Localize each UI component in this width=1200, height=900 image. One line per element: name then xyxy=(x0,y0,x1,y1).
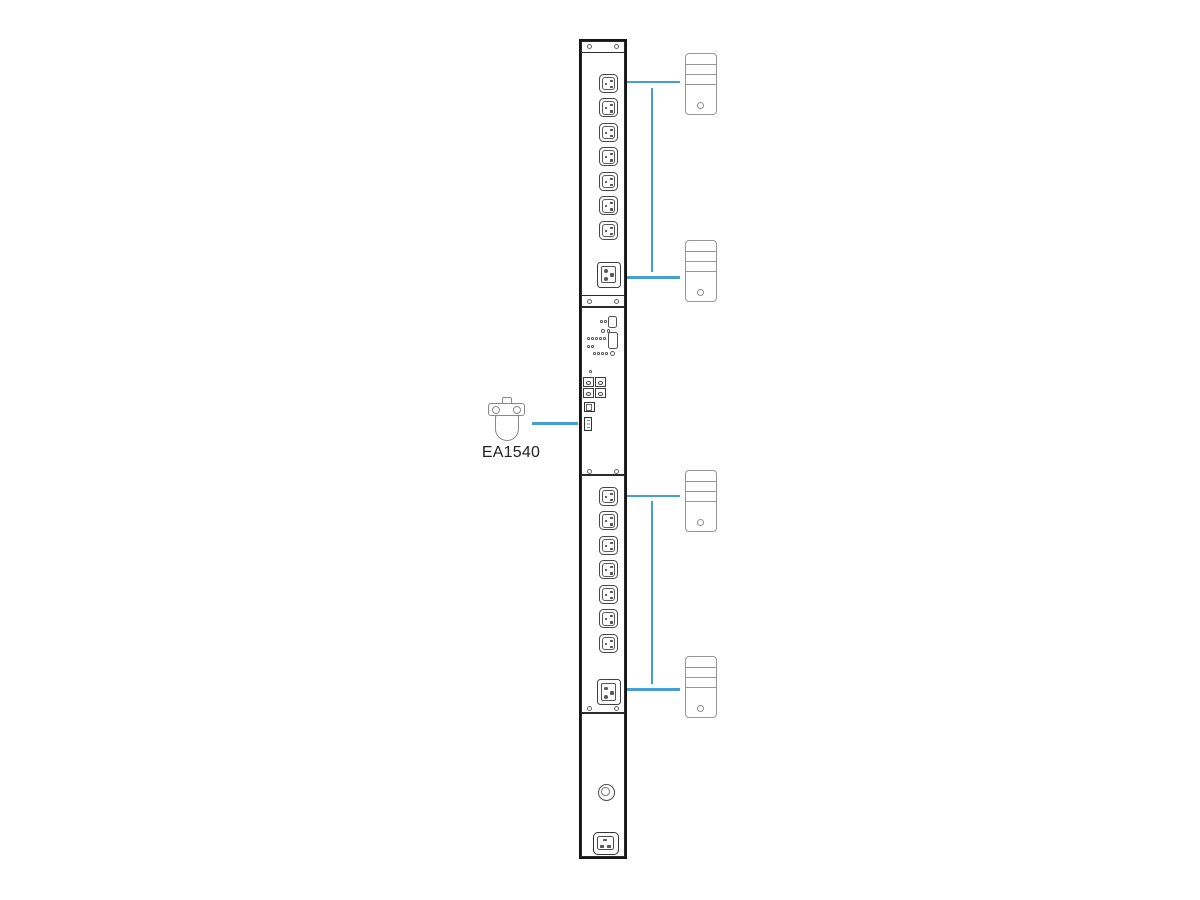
combo-port-icon xyxy=(595,388,606,398)
c13-outlet xyxy=(599,147,618,166)
status-led-icon xyxy=(597,352,600,355)
c13-outlet xyxy=(599,560,618,579)
outlet-pin xyxy=(605,83,607,85)
server-bay-line xyxy=(686,687,716,688)
server-icon xyxy=(685,240,717,302)
combo-port-icon xyxy=(583,388,594,398)
status-led-icon xyxy=(605,352,608,355)
bracket-divider-line xyxy=(582,295,624,296)
server-bay-line xyxy=(686,84,716,85)
circuit-breaker-button-inner xyxy=(601,787,610,796)
c13-outlet xyxy=(599,511,618,530)
sensor-mounting-hole xyxy=(492,406,500,414)
outlet-pin xyxy=(605,181,607,183)
status-led-icon xyxy=(603,337,606,340)
inlet-pin xyxy=(600,845,604,847)
outlet-pin xyxy=(605,594,607,596)
connection-line-top-c19-to-server xyxy=(627,276,680,279)
outlet-pin xyxy=(605,132,607,134)
server-icon xyxy=(685,470,717,532)
status-led-icon xyxy=(604,320,607,323)
connection-line-top-outlet-to-server xyxy=(627,81,680,84)
pdu-module-outlet-bank-top xyxy=(581,41,625,307)
c13-outlet xyxy=(599,609,618,628)
outlet-face xyxy=(602,539,615,553)
inlet-pin xyxy=(607,845,611,847)
outlet-pin xyxy=(605,545,607,547)
outlet-pin xyxy=(610,499,612,501)
outlet-face xyxy=(601,266,616,284)
outlet-pin xyxy=(605,569,607,571)
outlet-pin xyxy=(610,153,612,155)
circuit-breaker-button xyxy=(598,784,615,801)
outlet-pin xyxy=(610,86,612,88)
status-led-panel xyxy=(585,315,621,375)
outlet-pin xyxy=(610,159,612,161)
screw-icon xyxy=(614,469,619,474)
c13-outlet xyxy=(599,634,618,653)
outlet-pin xyxy=(604,695,608,699)
outlet-face xyxy=(602,126,615,140)
outlet-face xyxy=(602,490,615,504)
pdu-module-power-inlet xyxy=(581,713,625,857)
server-bay-line xyxy=(686,667,716,668)
server-icon xyxy=(685,53,717,115)
outlet-pin xyxy=(610,646,612,648)
combo-port-opening xyxy=(598,392,604,396)
outlet-pin xyxy=(605,496,607,498)
status-led-icon xyxy=(610,351,615,356)
server-bay-line xyxy=(686,271,716,272)
outlet-pin xyxy=(605,520,607,522)
outlet-pin xyxy=(605,205,607,207)
status-led-icon xyxy=(601,352,604,355)
outlet-face xyxy=(602,224,615,238)
outlet-pin xyxy=(605,230,607,232)
server-power-button-icon xyxy=(697,289,704,296)
c13-outlet xyxy=(599,487,618,506)
outlet-pin xyxy=(610,135,612,137)
outlet-face xyxy=(602,612,615,626)
c19-outlet xyxy=(597,262,621,288)
c13-outlet xyxy=(599,221,618,240)
status-led-icon xyxy=(601,329,605,333)
c13-outlet xyxy=(599,123,618,142)
combo-port-opening xyxy=(586,392,592,396)
outlet-face xyxy=(601,683,616,701)
server-bay-line xyxy=(686,491,716,492)
status-led-icon xyxy=(591,337,594,340)
lan-port-opening xyxy=(586,404,592,411)
outlet-pin xyxy=(610,517,612,519)
environment-sensor-icon xyxy=(488,396,528,442)
server-icon xyxy=(685,656,717,718)
lan-port-icon xyxy=(584,402,595,412)
outlet-pin xyxy=(610,493,612,495)
outlet-pin xyxy=(610,621,612,623)
outlet-pin xyxy=(610,591,612,593)
c13-outlet xyxy=(599,74,618,93)
c19-outlet xyxy=(597,679,621,705)
combo-port-opening xyxy=(586,381,592,385)
server-bay-line xyxy=(686,74,716,75)
connection-line-bottom-c19-to-server xyxy=(627,688,680,691)
outlet-pin xyxy=(605,643,607,645)
sensor-cable-line xyxy=(532,422,578,425)
outlet-pin xyxy=(610,273,614,277)
server-power-button-icon xyxy=(697,705,704,712)
screw-icon xyxy=(587,706,592,711)
sensor-model-label: EA1540 xyxy=(480,444,542,462)
outlet-pin xyxy=(610,233,612,235)
status-led-icon xyxy=(599,337,602,340)
c13-outlet xyxy=(599,196,618,215)
outlet-pin xyxy=(610,178,612,180)
outlet-pin xyxy=(610,691,614,695)
combo-port-icon xyxy=(583,377,594,387)
screw-icon xyxy=(614,299,619,304)
outlet-pin xyxy=(610,548,612,550)
outlet-face xyxy=(602,588,615,602)
inlet-face xyxy=(597,836,614,850)
outlet-pin xyxy=(610,640,612,642)
status-led-icon xyxy=(591,345,594,348)
screw-icon xyxy=(587,44,592,49)
server-bay-line xyxy=(686,261,716,262)
sensor-body xyxy=(495,415,519,441)
pdu-module-outlet-bank-bottom xyxy=(581,475,625,713)
sensor-port-icon xyxy=(584,417,592,431)
bracket-divider-line xyxy=(582,52,624,53)
server-bay-line xyxy=(686,677,716,678)
c13-outlet xyxy=(599,98,618,117)
connection-bracket-bottom-group xyxy=(651,501,654,684)
c13-outlet xyxy=(599,536,618,555)
screw-icon xyxy=(587,299,592,304)
outlet-pin xyxy=(605,156,607,158)
outlet-face xyxy=(602,637,615,651)
outlet-pin xyxy=(610,572,612,574)
screw-icon xyxy=(614,44,619,49)
outlet-pin xyxy=(604,277,608,281)
status-led-icon xyxy=(600,320,603,323)
server-bay-line xyxy=(686,501,716,502)
server-bay-line xyxy=(686,64,716,65)
outlet-pin xyxy=(610,184,612,186)
sensor-port-pins xyxy=(587,420,590,428)
status-led-icon xyxy=(587,337,590,340)
sensor-mounting-hole xyxy=(513,406,521,414)
inlet-pin xyxy=(603,839,607,841)
status-led-icon xyxy=(589,370,592,373)
status-led-icon xyxy=(593,352,596,355)
outlet-face xyxy=(602,175,615,189)
outlet-pin xyxy=(610,227,612,229)
pdu-unit xyxy=(579,39,627,859)
server-power-button-icon xyxy=(697,519,704,526)
server-bay-line xyxy=(686,481,716,482)
outlet-face xyxy=(602,563,615,577)
outlet-face xyxy=(602,199,615,213)
combo-port-icon xyxy=(595,377,606,387)
power-inlet-c20 xyxy=(593,832,619,855)
connection-line-bottom-outlet-to-server xyxy=(627,495,680,498)
panel-button xyxy=(608,332,618,349)
outlet-pin xyxy=(610,208,612,210)
outlet-pin xyxy=(610,104,612,106)
status-led-icon xyxy=(595,337,598,340)
outlet-pin xyxy=(610,597,612,599)
outlet-pin xyxy=(604,269,608,273)
server-power-button-icon xyxy=(697,102,704,109)
panel-button xyxy=(608,316,617,328)
outlet-pin xyxy=(610,542,612,544)
connection-bracket-top-group xyxy=(651,88,654,272)
outlet-pin xyxy=(610,129,612,131)
status-led-icon xyxy=(587,345,590,348)
outlet-face xyxy=(602,150,615,164)
combo-port-opening xyxy=(598,381,604,385)
outlet-pin xyxy=(604,687,608,691)
pdu-wiring-diagram: EA1540 xyxy=(0,0,1200,900)
outlet-pin xyxy=(610,80,612,82)
c13-outlet xyxy=(599,585,618,604)
screw-icon xyxy=(587,469,592,474)
outlet-pin xyxy=(610,615,612,617)
server-bay-line xyxy=(686,251,716,252)
pdu-module-control-panel xyxy=(581,307,625,475)
outlet-pin xyxy=(610,566,612,568)
outlet-face xyxy=(602,77,615,91)
outlet-pin xyxy=(610,523,612,525)
outlet-pin xyxy=(610,202,612,204)
outlet-pin xyxy=(610,110,612,112)
outlet-pin xyxy=(605,107,607,109)
c13-outlet xyxy=(599,172,618,191)
outlet-face xyxy=(602,514,615,528)
screw-icon xyxy=(614,706,619,711)
outlet-face xyxy=(602,101,615,115)
outlet-pin xyxy=(605,618,607,620)
